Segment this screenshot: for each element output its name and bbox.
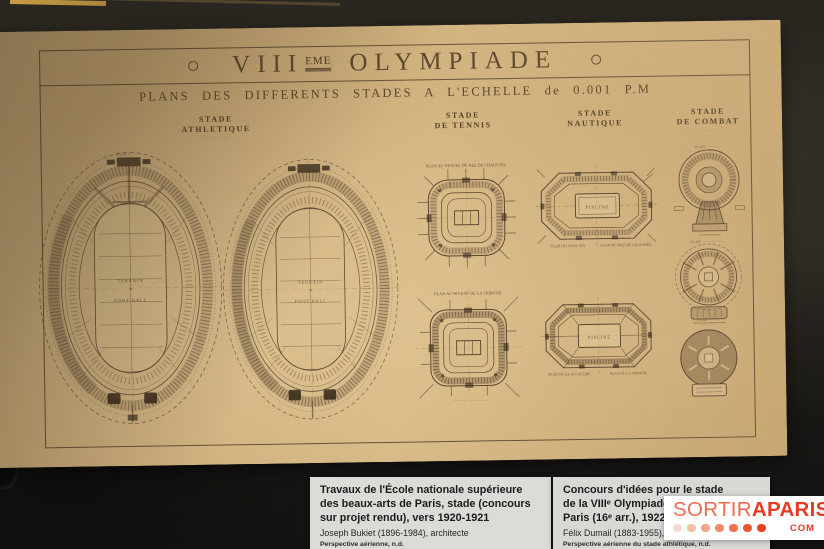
title-word: OLYMPIADE	[349, 46, 557, 76]
athletic-stadium-plan-2: TERRAIN DE FOOT-BALL	[219, 148, 403, 431]
artwork-note: Perspective aérienne, n.d.	[320, 541, 541, 548]
photo-of-exhibit: VIIIEMEOLYMPIADE PLANS DES DIFFERENTS ST…	[0, 0, 824, 549]
logo-dot	[687, 524, 696, 533]
artwork-author: Joseph Bukiet (1896-1984), architecte	[320, 528, 541, 538]
combat-stadium-plan-1: PLAN ·· ······ ···	[667, 141, 750, 238]
poster-title: VIIIEMEOLYMPIADE	[232, 46, 557, 79]
plan-caption-line1: PLAN ··· ······	[697, 318, 719, 322]
section-header-athletique: STADE ATHLETIQUE ······ ·········	[141, 113, 291, 141]
logo-dot	[715, 524, 724, 533]
plan-caption: PLAN ·· ······ ···	[695, 145, 722, 149]
title-superscript: EME	[305, 54, 331, 68]
plan-caption-left: PLAN DU SOUS-SOL	[550, 244, 586, 249]
frame-edge-highlight	[10, 0, 106, 6]
logo-aparis-text: APARIS	[752, 498, 824, 521]
plan-caption: PLAN ····· ·· ··· ·······	[690, 240, 725, 245]
logo-dot	[729, 524, 738, 533]
title-roman-numeral: VIII	[232, 50, 303, 78]
logo-dot	[757, 524, 766, 533]
artwork-title: Travaux de l'École nationale supérieure …	[320, 484, 541, 525]
plan-caption-left: PLAN DE LA 1E GALERIE	[548, 372, 591, 377]
circle-ornament-left	[188, 60, 198, 70]
plan-caption: PLAN AU NIVEAU DE LA TRIBUNE	[434, 290, 502, 296]
sortiraparis-watermark: SORTIRAPARIS COM	[664, 496, 824, 540]
plan-caption: PLAN AU NIVEAU DU REZ DE CHAUSSÉE	[426, 162, 507, 168]
de-label: DE	[129, 287, 133, 291]
plan-caption-right: PLAN DU REZ DE CHAUSSÉE	[600, 242, 652, 248]
logo-dots: COM	[673, 523, 815, 534]
caption-card-left: Travaux de l'École nationale supérieure …	[310, 477, 551, 549]
poster-paper: VIIIEMEOLYMPIADE PLANS DES DIFFERENTS ST…	[0, 20, 787, 469]
sortiraparis-wordmark: SORTIRAPARIS	[673, 499, 815, 521]
logo-dot	[701, 524, 710, 533]
tennis-stadium-plan-1: PLAN AU NIVEAU DU REZ DE CHAUSSÉE	[414, 159, 520, 273]
pool-label: PISCINE	[585, 204, 609, 209]
logo-dot	[743, 524, 752, 533]
terrain-label: TERRAIN	[298, 279, 323, 284]
section-header-tennis: STADE DE TENNIS ··· ·········	[388, 110, 538, 138]
pool-label: PISCINE	[588, 334, 611, 339]
section-header-combat: STADE DE COMBAT ··· ·········	[633, 106, 783, 134]
circle-ornament-right	[591, 54, 601, 64]
football-label: FOOT-BALL	[114, 298, 147, 304]
logo-sortir-text: SORTIR	[673, 498, 752, 521]
artwork-note: Perspective aérienne du stade athlétique…	[563, 541, 760, 548]
logo-com-text: COM	[790, 523, 815, 534]
nautique-stadium-plan-1: PISCINE PLAN DU SOUS-SOL PLAN DU REZ DE …	[535, 164, 658, 254]
football-label: FOOT-BALL	[295, 298, 327, 303]
tennis-stadium-plan-2: PLAN AU NIVEAU DE LA TRIBUNE	[414, 287, 524, 405]
plan-caption-right: PLAN DE LA TRIBUNE	[610, 371, 648, 376]
frame-edge-highlight-faint	[100, 0, 340, 6]
plan-caption-line2: · ····· ······	[700, 323, 716, 327]
de-label: DE	[309, 288, 313, 292]
plan-caption-bottom: ···· ·· ······ | ···· ·· ·····	[452, 398, 488, 403]
combat-stadium-plan-3: PLAN ··· ······ · ····· ······	[669, 315, 748, 404]
athletic-stadium-plan-1: PLAN ·· ···· ···	[34, 147, 226, 430]
nautique-stadium-plan-2: PISCINE PLAN DE LA 1E GALERIE PLAN DE LA…	[539, 296, 658, 382]
terrain-label: TERRAIN	[117, 278, 143, 283]
logo-dot	[673, 524, 682, 533]
